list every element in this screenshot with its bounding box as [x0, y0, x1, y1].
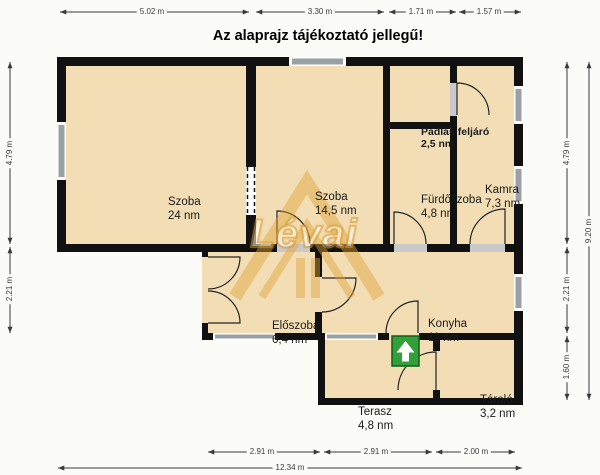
dim-right-1: 4.79 m	[562, 138, 572, 168]
dim-bottom-1: 2.91 m	[247, 447, 277, 457]
dim-top-1: 5.02 m	[137, 7, 167, 17]
floor-plan: Az alaprajz tájékoztató jellegű! Lévai S…	[0, 0, 600, 475]
dim-right-2: 2.21 m	[562, 274, 572, 304]
room-label-konyha: Konyha11 nm	[428, 289, 467, 373]
dim-top-2: 3.30 m	[305, 7, 335, 17]
entrance-arrow-icon	[392, 336, 419, 366]
dim-left-2: 2.21 m	[5, 274, 15, 304]
plan-disclaimer-title: Az alaprajz tájékoztató jellegű!	[213, 28, 423, 44]
room-label-furdoszoba: Fürdőszoba4,8 nm	[421, 165, 482, 249]
dim-bottom-total: 12.34 m	[273, 463, 308, 473]
room-label-szoba-24: Szoba24 nm	[168, 167, 201, 251]
dim-right-3: 1.60 m	[562, 352, 572, 382]
dim-left-1: 4.79 m	[5, 138, 15, 168]
room-label-kamra: Kamra7,3 nm	[485, 155, 520, 239]
room-label-szoba-14: Szoba14,5 nm	[315, 162, 357, 246]
watermark-text: Lévai	[224, 212, 384, 257]
room-label-tarolo: Tároló3,2 nm	[480, 365, 515, 449]
dim-right-total: 9.20 m	[584, 216, 594, 246]
dim-bottom-3: 2.00 m	[461, 447, 491, 457]
dim-top-4: 1.57 m	[474, 7, 504, 17]
dim-bottom-2: 2.91 m	[361, 447, 391, 457]
room-label-eloszoba: Előszoba6,4 nm	[272, 291, 319, 375]
dim-top-3: 1.71 m	[406, 7, 436, 17]
